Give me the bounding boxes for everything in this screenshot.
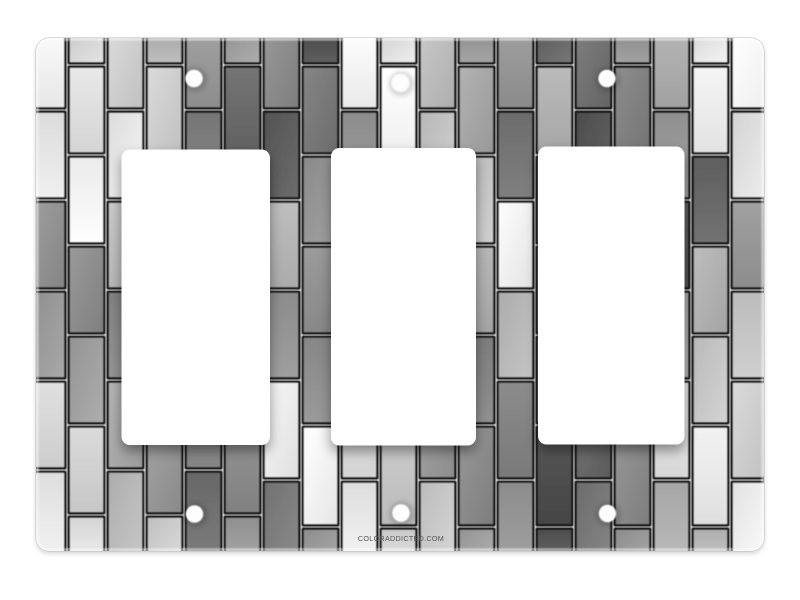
- svg-text:COLORADDICTED.COM: COLORADDICTED.COM: [358, 534, 444, 543]
